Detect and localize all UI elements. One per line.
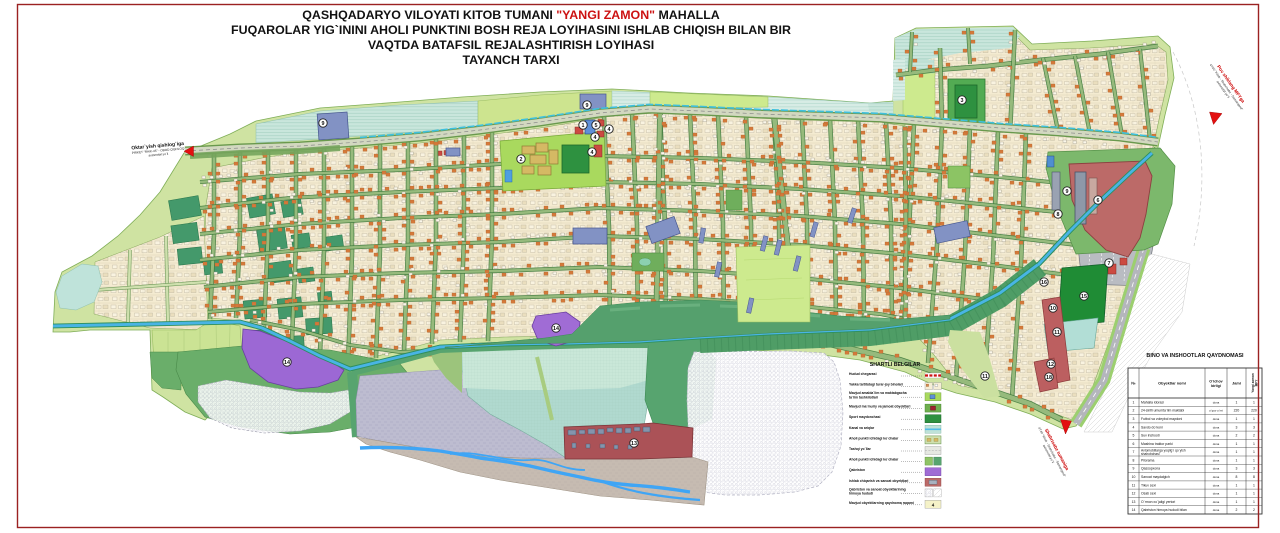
svg-text:Yakka tartibdagi turar-joy bin: Yakka tartibdagi turar-joy binolari — [849, 383, 903, 387]
svg-text:dona: dona — [1213, 450, 1220, 454]
svg-text:himoya hududi: himoya hududi — [849, 492, 873, 496]
svg-text:9: 9 — [1133, 467, 1135, 471]
svg-text:4: 4 — [591, 150, 594, 156]
svg-text:5: 5 — [595, 123, 598, 129]
svg-text:15: 15 — [1081, 294, 1087, 300]
svg-text:Ishlab chiqarish va sanoat oby: Ishlab chiqarish va sanoat obyektlari — [849, 479, 908, 483]
svg-text:Suv inshooti: Suv inshooti — [1141, 434, 1160, 438]
svg-text:13: 13 — [631, 441, 637, 447]
svg-text:1: 1 — [1236, 500, 1238, 504]
svg-text:Futbol va voleybol maydoni: Futbol va voleybol maydoni — [1141, 417, 1182, 421]
svg-text:1: 1 — [1236, 458, 1238, 462]
svg-text:2: 2 — [1133, 409, 1135, 413]
svg-text:BINO VA INSHOOTLAR QAYDNOMASI: BINO VA INSHOOTLAR QAYDNOMASI — [1146, 353, 1244, 359]
svg-text:shahobchasi: shahobchasi — [1141, 452, 1160, 456]
svg-text:Qassopxona: Qassopxona — [1141, 467, 1160, 471]
svg-text:1: 1 — [1236, 450, 1238, 454]
svg-text:1: 1 — [1253, 450, 1255, 454]
svg-text:Obyektlar nomi: Obyektlar nomi — [1158, 382, 1186, 386]
svg-text:dona: dona — [1213, 417, 1220, 421]
svg-text:dona: dona — [1213, 508, 1220, 512]
svg-text:3: 3 — [1253, 425, 1255, 429]
svg-text:8: 8 — [1236, 475, 1238, 479]
svg-text:1: 1 — [1253, 500, 1255, 504]
svg-text:1: 1 — [1253, 483, 1255, 487]
svg-text:14: 14 — [553, 326, 559, 332]
svg-text:Jami: Jami — [1232, 382, 1241, 386]
svg-text:1: 1 — [1253, 400, 1255, 404]
svg-text:8: 8 — [1133, 458, 1135, 462]
svg-text:8: 8 — [1253, 475, 1255, 479]
svg-text:Mahalla idorasi: Mahalla idorasi — [1141, 400, 1164, 404]
svg-text:Aholi punkti ichidagi ko`chala: Aholi punkti ichidagi ko`chalar — [849, 436, 899, 440]
svg-text:birligi: birligi — [1211, 384, 1221, 388]
svg-text:dona: dona — [1213, 400, 1220, 404]
svg-text:3: 3 — [1236, 467, 1238, 471]
svg-text:2: 2 — [1236, 434, 1238, 438]
svg-text:4: 4 — [1133, 425, 1135, 429]
svg-text:Osab sexi: Osab sexi — [1141, 492, 1156, 496]
svg-text:7: 7 — [1108, 261, 1111, 267]
svg-text:dona: dona — [1213, 467, 1220, 471]
svg-text:1: 1 — [582, 123, 585, 129]
svg-text:1: 1 — [1253, 492, 1255, 496]
svg-text:ta`lim tashkilotlari: ta`lim tashkilotlari — [849, 395, 878, 399]
svg-text:3: 3 — [1236, 425, 1238, 429]
svg-text:o`quv o`rni: o`quv o`rni — [1209, 409, 1223, 413]
svg-text:Mavjud ma`muriy va jamoat obye: Mavjud ma`muriy va jamoat obyektlari — [849, 405, 910, 409]
svg-text:2: 2 — [1253, 434, 1255, 438]
svg-text:№: № — [1131, 382, 1135, 386]
svg-text:7: 7 — [1133, 450, 1135, 454]
svg-text:dona: dona — [1213, 492, 1220, 496]
svg-text:2: 2 — [1253, 508, 1255, 512]
svg-text:Savdo do`koni: Savdo do`koni — [1141, 425, 1163, 429]
svg-text:1: 1 — [1236, 417, 1238, 421]
svg-text:4: 4 — [594, 135, 597, 141]
svg-text:dona: dona — [1213, 458, 1220, 462]
svg-text:1: 1 — [1253, 417, 1255, 421]
svg-text:dona: dona — [1213, 483, 1220, 487]
svg-text:1: 1 — [1253, 458, 1255, 462]
svg-text:Hudud chegarasi: Hudud chegarasi — [849, 372, 877, 376]
svg-text:3: 3 — [1253, 467, 1255, 471]
svg-text:4: 4 — [608, 127, 611, 133]
svg-text:1: 1 — [1236, 483, 1238, 487]
svg-text:dona: dona — [1213, 442, 1220, 446]
svg-text:SHARTLI BELGILAR: SHARTLI BELGILAR — [870, 362, 921, 368]
svg-text:dona: dona — [1213, 475, 1220, 479]
svg-text:12: 12 — [1132, 492, 1136, 496]
svg-text:Mavjud obyektlarning qaydnoma: Mavjud obyektlarning qaydnoma raqami — [849, 501, 914, 505]
svg-text:1: 1 — [1253, 442, 1255, 446]
svg-text:dona: dona — [1213, 500, 1220, 504]
svg-text:Qabriston: Qabriston — [849, 468, 865, 472]
svg-text:9: 9 — [1066, 189, 1069, 195]
svg-text:3: 3 — [1133, 417, 1135, 421]
svg-text:18: 18 — [1046, 375, 1052, 381]
svg-text:12: 12 — [1048, 362, 1054, 368]
svg-text:9: 9 — [586, 103, 589, 109]
svg-text:Qabriston himoya hududi bilan: Qabriston himoya hududi bilan — [1141, 508, 1187, 512]
svg-text:13: 13 — [1132, 500, 1136, 504]
svg-text:220: 220 — [1234, 409, 1240, 413]
svg-text:2: 2 — [520, 157, 523, 163]
svg-text:1: 1 — [1236, 400, 1238, 404]
svg-text:Aholi punkti ichidagi ko`chala: Aholi punkti ichidagi ko`chalar — [849, 458, 899, 462]
svg-text:dona: dona — [1213, 434, 1220, 438]
svg-text:11: 11 — [1054, 330, 1060, 336]
svg-text:11: 11 — [1132, 483, 1136, 487]
svg-text:6: 6 — [1097, 198, 1100, 204]
svg-text:14: 14 — [1132, 508, 1136, 512]
svg-text:Pilorama: Pilorama — [1141, 458, 1154, 462]
svg-text:Sanoat maydalgich: Sanoat maydalgich — [1141, 475, 1170, 479]
svg-text:24-sinfli umumta`lim maktabi: 24-sinfli umumta`lim maktabi — [1141, 409, 1184, 413]
svg-text:8: 8 — [1057, 212, 1060, 218]
svg-text:Sport maydonchasi: Sport maydonchasi — [849, 415, 881, 419]
svg-text:9: 9 — [322, 121, 325, 127]
svg-text:14: 14 — [284, 360, 290, 366]
svg-text:10: 10 — [1132, 475, 1136, 479]
svg-text:16: 16 — [1041, 280, 1047, 286]
svg-text:1: 1 — [1133, 400, 1135, 404]
svg-text:Kanal va ariqlar: Kanal va ariqlar — [849, 426, 875, 430]
svg-text:220: 220 — [1251, 409, 1257, 413]
svg-text:2: 2 — [1236, 508, 1238, 512]
svg-text:1: 1 — [1236, 442, 1238, 446]
svg-text:Mashina traktor parki: Mashina traktor parki — [1141, 442, 1173, 446]
svg-text:5: 5 — [1133, 434, 1135, 438]
svg-text:O`lchov: O`lchov — [1209, 380, 1222, 384]
svg-text:10: 10 — [1050, 306, 1056, 312]
svg-text:3: 3 — [961, 98, 964, 104]
svg-text:Tikuv sexi: Tikuv sexi — [1141, 483, 1156, 487]
svg-text:11: 11 — [982, 374, 988, 380]
svg-text:O`rmon xo`jaligi yertori: O`rmon xo`jaligi yertori — [1141, 500, 1176, 504]
svg-text:dona: dona — [1213, 425, 1220, 429]
svg-text:6: 6 — [1133, 442, 1135, 446]
svg-text:1: 1 — [1236, 492, 1238, 496]
svg-text:Tashqi yo`llar: Tashqi yo`llar — [849, 447, 871, 451]
